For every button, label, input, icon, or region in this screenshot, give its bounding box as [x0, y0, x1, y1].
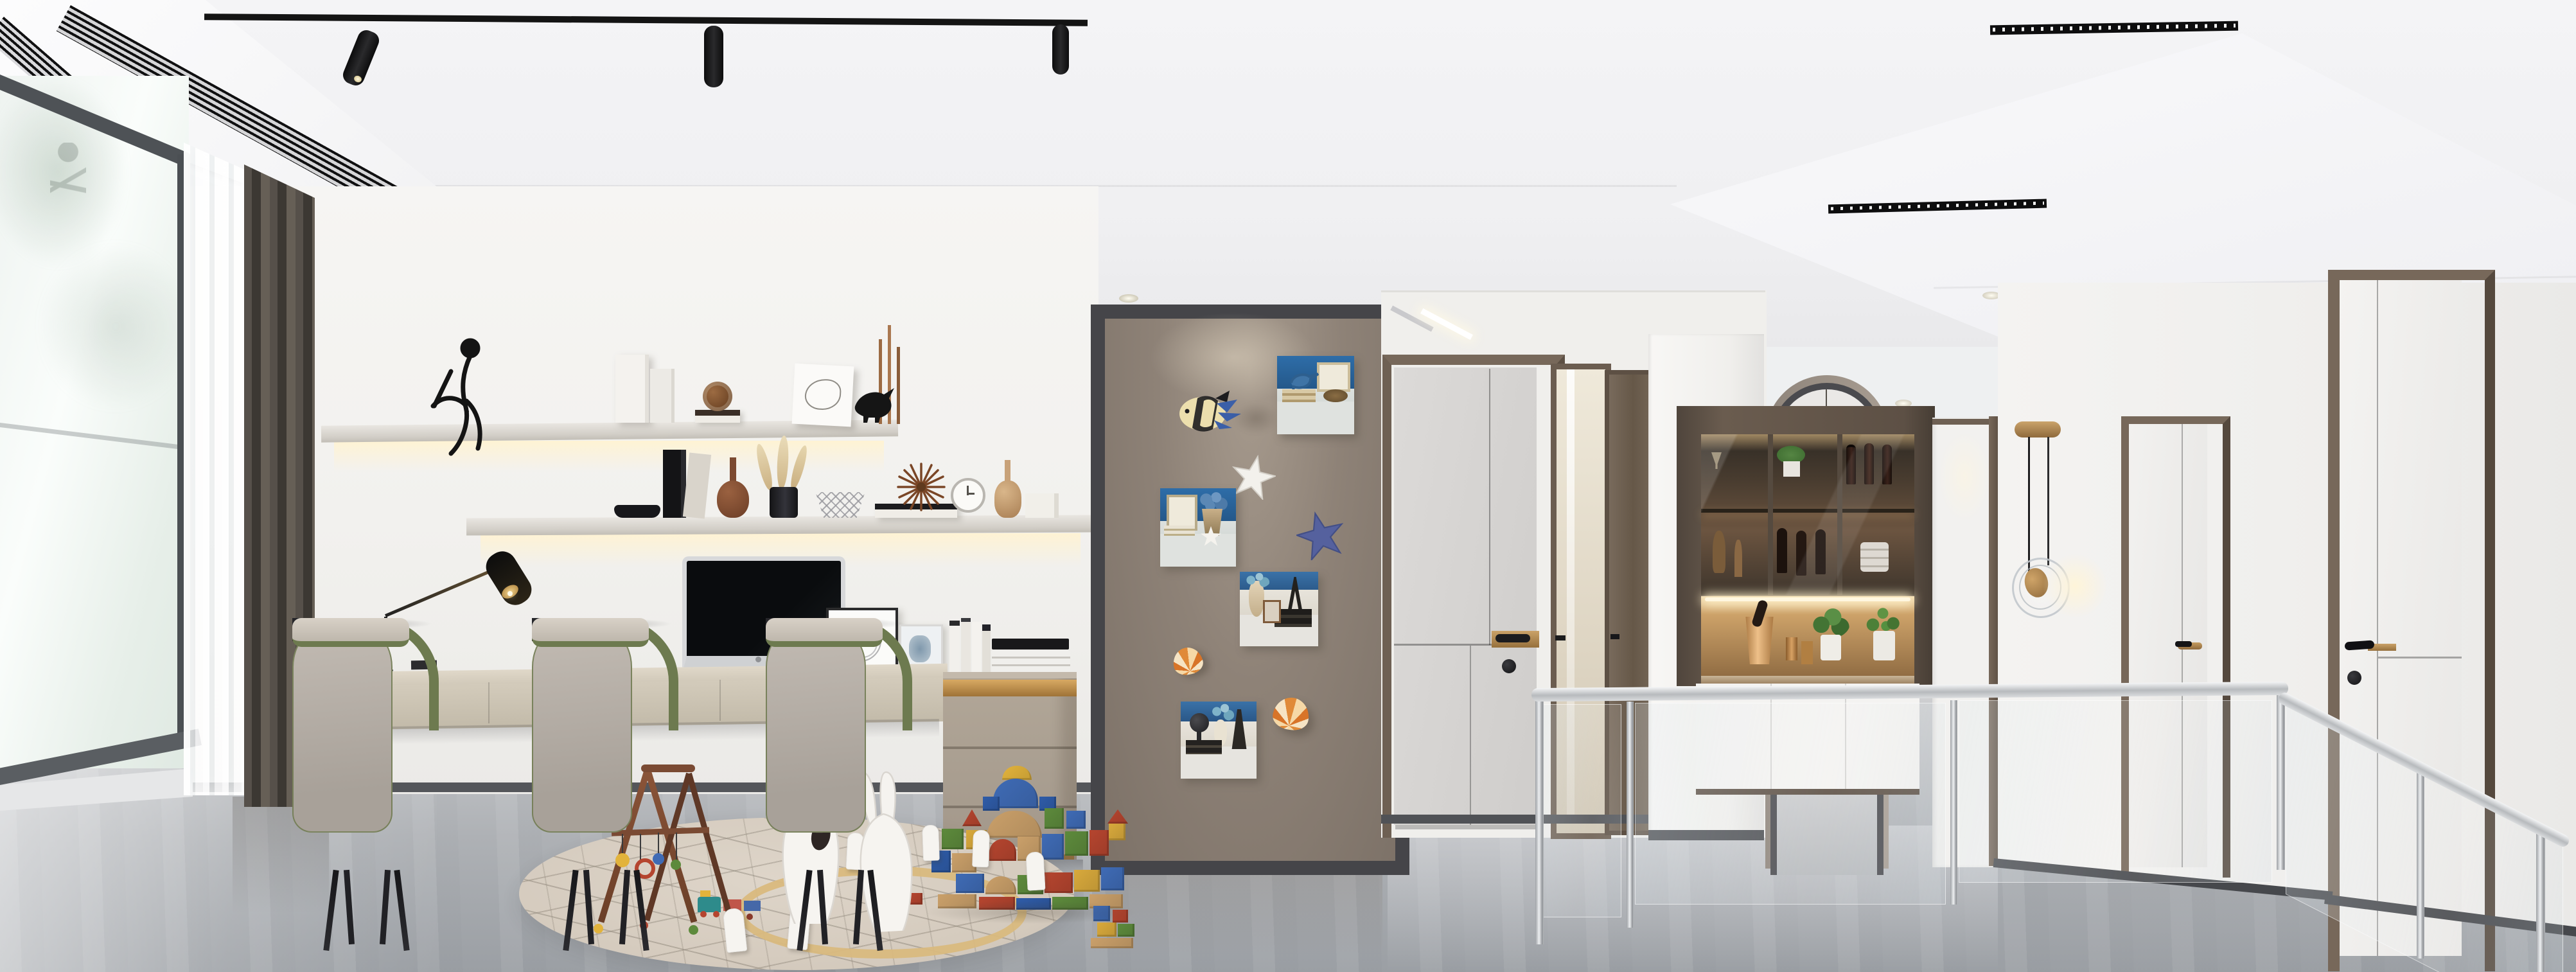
- chair-leg: [394, 870, 409, 951]
- chair-seat: [532, 618, 649, 647]
- chair: [532, 618, 680, 960]
- chair-seat: [766, 618, 883, 647]
- chair-seat: [292, 618, 409, 647]
- chair-leg: [323, 870, 339, 951]
- chair: [292, 618, 440, 960]
- chair-leg: [583, 870, 594, 944]
- peg-figure: [1025, 851, 1045, 890]
- chair-leg: [344, 870, 355, 944]
- chair-leg: [867, 870, 883, 951]
- chair-back-pad: [532, 618, 632, 833]
- peg-figure: [723, 908, 748, 953]
- chair-leg: [853, 870, 864, 944]
- chair-leg: [817, 870, 828, 944]
- peg-figure: [922, 825, 940, 862]
- chair: [766, 618, 913, 960]
- peg-figure: [972, 830, 990, 868]
- castle-shadow: [925, 901, 1137, 924]
- interior-render: [0, 0, 2576, 972]
- chair-back-pad: [766, 618, 866, 833]
- chair-leg: [797, 870, 812, 951]
- chair-leg: [380, 870, 391, 944]
- chair-leg: [619, 870, 630, 944]
- chair-back-pad: [292, 618, 393, 833]
- chair-leg: [633, 870, 649, 951]
- chair-leg: [563, 870, 578, 951]
